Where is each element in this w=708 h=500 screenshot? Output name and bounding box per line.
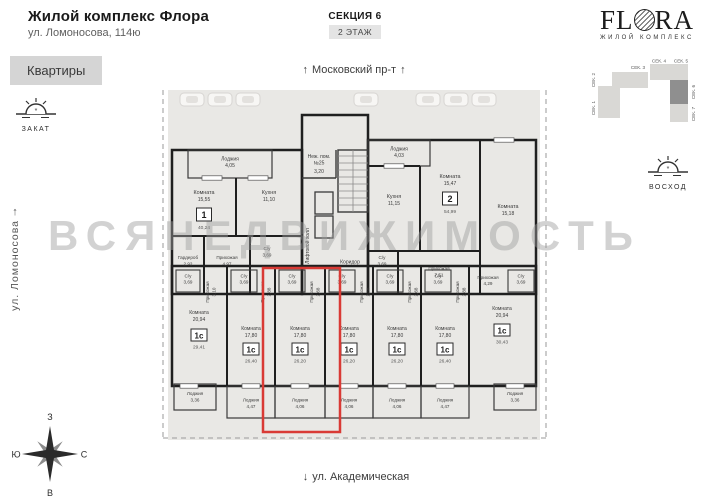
lift-hall-label: Лифтовой холл [304, 228, 311, 264]
page-title: Жилой комплекс Флора [28, 8, 209, 25]
street-left-label: ул. Ломоносова [9, 220, 21, 311]
svg-text:2,68: 2,68 [366, 287, 371, 296]
svg-text:2,68: 2,68 [316, 287, 321, 296]
compass-south: Ю [11, 450, 20, 460]
svg-text:17,80: 17,80 [439, 333, 452, 339]
svg-text:2,68: 2,68 [414, 287, 419, 296]
compass-east: В [47, 488, 53, 498]
sunrise-label: ВОСХОД [640, 184, 696, 191]
arrow-down-icon: ↓ [299, 471, 313, 483]
svg-text:20,94: 20,94 [496, 313, 509, 319]
arrow-up-icon: ↑ [298, 64, 312, 76]
sunset-icon: * [14, 90, 58, 120]
compass-rose: З Ю С В [8, 408, 92, 500]
sunrise-icon: * [646, 148, 690, 178]
svg-text:1с: 1с [393, 346, 402, 355]
sunset-label: ЗАКАТ [8, 126, 64, 133]
svg-text:Лоджия: Лоджия [187, 391, 204, 396]
svg-text:26,20: 26,20 [391, 359, 403, 365]
svg-text:С/у: С/у [379, 255, 387, 260]
svg-text:15,55: 15,55 [198, 197, 211, 203]
svg-text:Лоджия: Лоджия [389, 398, 406, 403]
svg-text:1с: 1с [296, 346, 305, 355]
svg-text:17,80: 17,80 [343, 333, 356, 339]
svg-text:Комната: Комната [339, 326, 359, 332]
street-bottom: ↓ул. Академическая [158, 471, 550, 483]
svg-text:17,80: 17,80 [391, 333, 404, 339]
svg-text:Комната: Комната [189, 310, 209, 316]
sunrise-indicator: * ВОСХОД [640, 148, 696, 191]
car-icon [236, 93, 260, 106]
svg-text:15,18: 15,18 [502, 211, 515, 217]
sec6-label: СЕК. 6 [691, 84, 696, 99]
svg-text:4,47: 4,47 [247, 404, 256, 409]
svg-text:1с: 1с [345, 346, 354, 355]
page-subtitle: ул. Ломоносова, 114ю [28, 27, 140, 39]
svg-text:26,20: 26,20 [343, 359, 355, 365]
svg-text:4,03: 4,03 [394, 153, 404, 159]
svg-text:Лоджия: Лоджия [437, 398, 454, 403]
brand-logo: FLRA ЖИЛОЙ КОМПЛЕКС [592, 6, 702, 41]
svg-text:26,20: 26,20 [294, 359, 306, 365]
svg-text:Лоджия: Лоджия [243, 398, 260, 403]
svg-text:Кухня: Кухня [387, 194, 402, 200]
svg-text:11,10: 11,10 [263, 197, 275, 203]
svg-text:Лоджия: Лоджия [292, 398, 309, 403]
sec3-label: СЕК. 3 [631, 65, 646, 70]
sec4-label: СЕК. 4 [652, 59, 667, 64]
svg-text:3,69: 3,69 [263, 253, 272, 258]
svg-text:26,40: 26,40 [439, 359, 451, 365]
svg-text:Прихожая: Прихожая [477, 275, 499, 280]
svg-text:1с: 1с [247, 346, 256, 355]
sec5-label: СЕК. 5 [674, 59, 689, 64]
svg-text:Лоджия: Лоджия [507, 391, 524, 396]
svg-text:С/у: С/у [241, 274, 249, 279]
svg-text:3,69: 3,69 [434, 280, 443, 285]
svg-text:15,47: 15,47 [444, 181, 457, 187]
svg-text:С/у: С/у [387, 274, 395, 279]
svg-text:3,69: 3,69 [288, 280, 297, 285]
compass-main-star [22, 426, 78, 482]
svg-text:3,69: 3,69 [240, 280, 249, 285]
svg-text:Прихожая: Прихожая [428, 266, 450, 271]
svg-text:3,10: 3,10 [212, 287, 217, 296]
apartments-button[interactable]: Квартиры [10, 56, 102, 85]
svg-text:Комната: Комната [193, 190, 214, 196]
non-residential-label: Неж. пом. [308, 154, 331, 160]
svg-text:2,88: 2,88 [267, 287, 272, 296]
svg-text:Кухня: Кухня [262, 190, 277, 196]
compass-west: З [47, 412, 52, 422]
svg-text:11,15: 11,15 [388, 201, 400, 207]
street-top: ↑Московский пр-т↑ [158, 64, 550, 76]
svg-text:Комната: Комната [387, 326, 407, 332]
svg-text:С/у: С/у [264, 246, 272, 251]
svg-text:Комната: Комната [241, 326, 261, 332]
svg-text:2,88: 2,88 [462, 287, 467, 296]
svg-text:3,69: 3,69 [386, 280, 395, 285]
svg-text:Прихожая: Прихожая [309, 281, 314, 303]
svg-text:Лоджия: Лоджия [390, 147, 408, 153]
svg-text:4,47: 4,47 [441, 404, 450, 409]
svg-text:3,36: 3,36 [511, 398, 520, 403]
site-map-sec1-2-block[interactable] [598, 86, 620, 118]
arrow-up-icon: ↑ [4, 206, 26, 218]
svg-text:3,36: 3,36 [191, 398, 200, 403]
svg-text:Прихожая: Прихожая [455, 281, 460, 303]
svg-text:Комната: Комната [435, 326, 455, 332]
car-icon [180, 93, 204, 106]
svg-text:4,97: 4,97 [223, 262, 232, 267]
logo-flower-icon [634, 9, 655, 31]
svg-text:20,94: 20,94 [193, 317, 206, 323]
svg-text:4,29: 4,29 [484, 281, 493, 286]
car-icon [444, 93, 468, 106]
street-left: ↑ ул. Ломоносова [4, 206, 26, 316]
corridor-label: Коридор [340, 260, 360, 266]
floor-plan: Неж. пом. №25 3,20 Лифтовой холл Коридор… [158, 86, 550, 446]
svg-text:Прихожая: Прихожая [359, 281, 364, 303]
site-map-sec3-block[interactable] [612, 72, 648, 88]
svg-text:Прихожая: Прихожая [205, 281, 210, 303]
site-map-sec6-block-active[interactable] [670, 80, 688, 104]
non-residential-area: 3,20 [314, 169, 324, 175]
svg-text:Гардероб: Гардероб [178, 255, 199, 260]
svg-text:С/у: С/у [289, 274, 297, 279]
logo-text-end: RA [655, 5, 695, 35]
svg-text:*: * [667, 166, 670, 173]
svg-text:Комната: Комната [497, 204, 518, 210]
street-top-label: Московский пр-т [312, 64, 396, 76]
svg-text:1с: 1с [498, 327, 507, 336]
sec1-label: СЕК. 1 [591, 100, 596, 115]
svg-text:Комната: Комната [290, 326, 310, 332]
svg-text:4,05: 4,05 [225, 163, 235, 169]
section-label: СЕКЦИЯ 6 [299, 11, 411, 22]
svg-text:С/у: С/у [435, 274, 443, 279]
non-residential-number: №25 [314, 161, 325, 167]
site-map-sec7-block[interactable] [670, 104, 688, 122]
svg-text:30,43: 30,43 [496, 340, 508, 346]
svg-text:54,99: 54,99 [444, 209, 456, 215]
logo-tagline: ЖИЛОЙ КОМПЛЕКС [592, 35, 702, 41]
svg-text:40,24: 40,24 [198, 225, 210, 231]
svg-text:4,06: 4,06 [296, 404, 305, 409]
svg-text:Прихожая: Прихожая [407, 281, 412, 303]
svg-text:Лоджия: Лоджия [341, 398, 358, 403]
svg-text:4,06: 4,06 [345, 404, 354, 409]
logo-text-start: FL [600, 5, 634, 35]
street-bottom-label: ул. Академическая [312, 471, 409, 483]
arrow-up-icon: ↑ [396, 64, 410, 76]
svg-text:3,69: 3,69 [378, 262, 387, 267]
sec2-label: СЕК. 2 [591, 72, 596, 87]
svg-text:3,69: 3,69 [184, 280, 193, 285]
svg-text:17,80: 17,80 [294, 333, 307, 339]
sec7-label: СЕК. 7 [691, 106, 696, 121]
svg-text:29,41: 29,41 [193, 345, 205, 351]
svg-text:2,92: 2,92 [184, 262, 193, 267]
svg-text:2: 2 [447, 194, 452, 204]
car-icon [208, 93, 232, 106]
sunset-indicator: * ЗАКАТ [8, 90, 64, 133]
svg-text:Прихожая: Прихожая [216, 255, 238, 260]
svg-text:26,40: 26,40 [245, 359, 257, 365]
site-map: СЕК. 3 СЕК. 2 СЕК. 1 СЕК. 4 СЕК. 5 СЕК. … [588, 58, 702, 144]
svg-text:Лоджия: Лоджия [221, 157, 239, 163]
svg-text:С/у: С/у [185, 274, 193, 279]
car-icon [354, 93, 378, 106]
svg-text:С/у: С/у [518, 274, 526, 279]
svg-text:1с: 1с [195, 332, 204, 341]
car-icon [416, 93, 440, 106]
section-header: СЕКЦИЯ 6 2 ЭТАЖ [299, 11, 411, 40]
svg-text:17,80: 17,80 [245, 333, 258, 339]
svg-text:3,69: 3,69 [517, 280, 526, 285]
svg-text:Комната: Комната [439, 174, 460, 180]
svg-text:1: 1 [201, 210, 206, 220]
floor-badge[interactable]: 2 ЭТАЖ [329, 25, 381, 39]
car-icon [472, 93, 496, 106]
svg-text:*: * [35, 108, 38, 115]
svg-text:Комната: Комната [492, 306, 512, 312]
compass-north: С [81, 450, 88, 460]
site-map-sec4-5-block[interactable] [650, 64, 688, 80]
svg-text:4,06: 4,06 [393, 404, 402, 409]
svg-text:1с: 1с [441, 346, 450, 355]
